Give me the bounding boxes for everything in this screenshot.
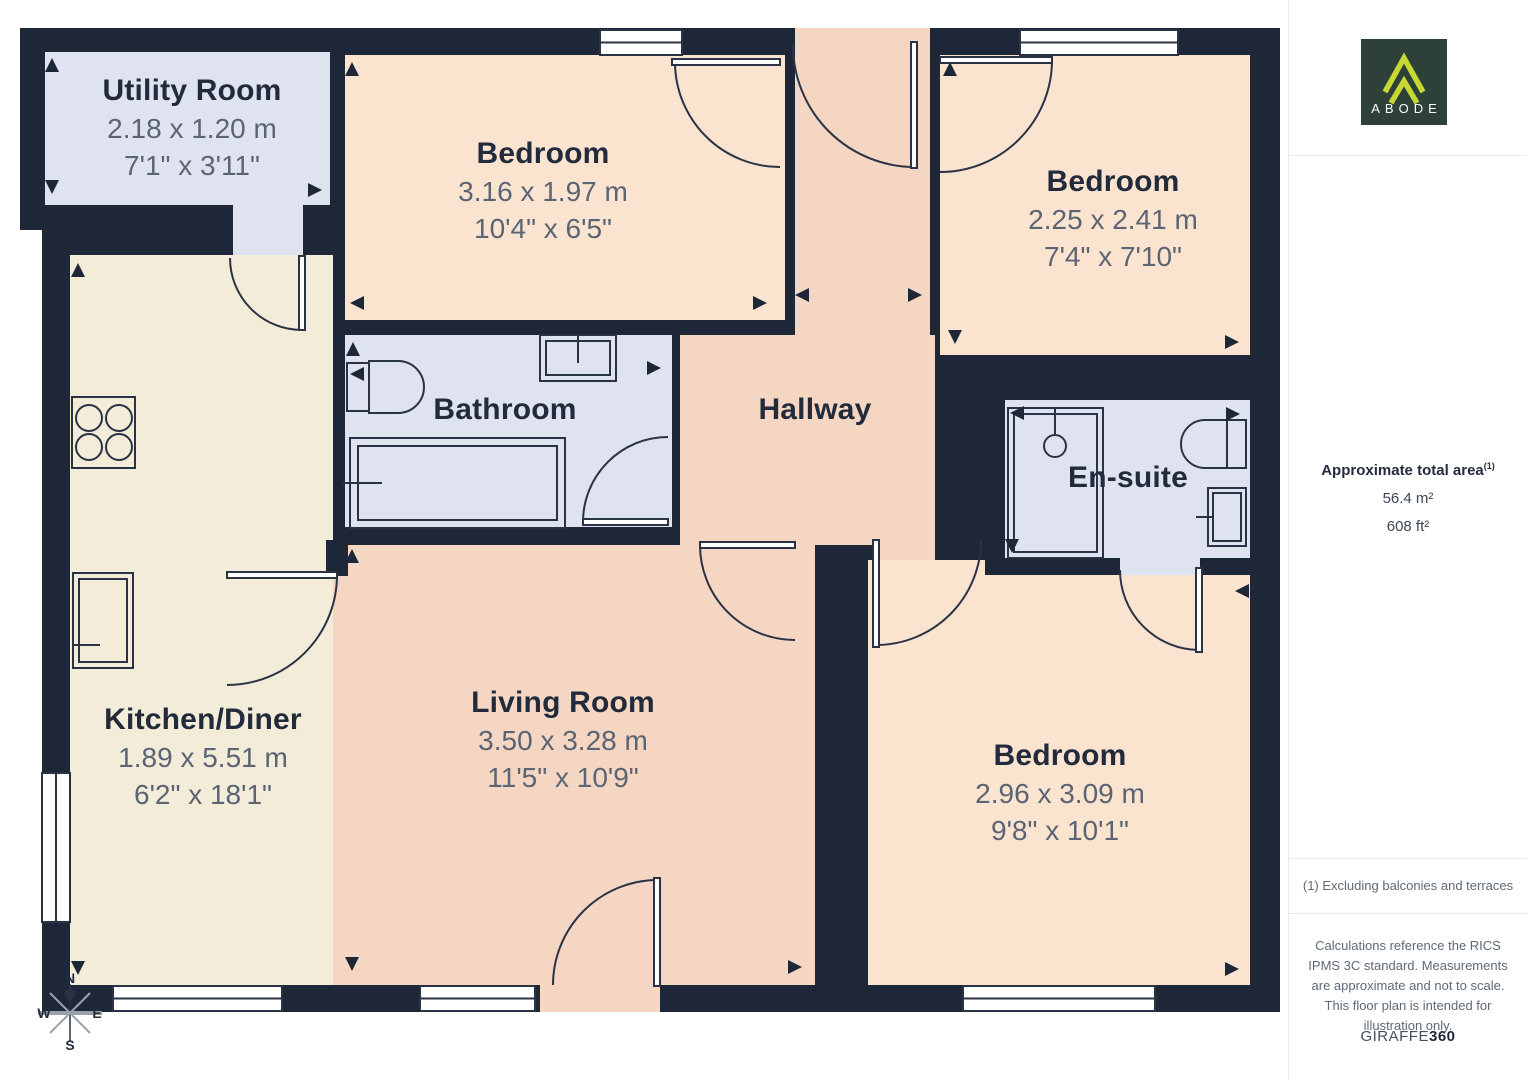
room-label-utility: Utility Room 2.18 x 1.20 m 7'1" x 3'11": [102, 74, 281, 182]
total-area-title: Approximate total area(1): [1289, 461, 1527, 479]
room-dim-imperial: 7'4" x 7'10": [1028, 241, 1198, 273]
room-dim-imperial: 10'4" x 6'5": [458, 213, 628, 245]
room-name: Utility Room: [102, 74, 281, 108]
provider-suffix: 360: [1429, 1028, 1456, 1045]
room-label-kitchen: Kitchen/Diner 1.89 x 5.51 m 6'2" x 18'1": [104, 703, 302, 811]
room-dim-metric: 1.89 x 5.51 m: [104, 742, 302, 774]
room-name: Bedroom: [975, 739, 1145, 773]
room-dim-metric: 2.18 x 1.20 m: [102, 113, 281, 145]
giraffe360-branding: GIRAFFE360: [1289, 1028, 1527, 1045]
room-label-bedroom-bottom: Bedroom 2.96 x 3.09 m 9'8" x 10'1": [975, 739, 1145, 847]
room-dim-imperial: 9'8" x 10'1": [975, 815, 1145, 847]
room-dim-metric: 2.96 x 3.09 m: [975, 778, 1145, 810]
abode-logo: ABODE: [1361, 39, 1447, 125]
total-area-block: Approximate total area(1) 56.4 m² 608 ft…: [1289, 461, 1527, 535]
room-name: Bedroom: [458, 137, 628, 171]
room-dim-metric: 2.25 x 2.41 m: [1028, 204, 1198, 236]
room-label-living: Living Room 3.50 x 3.28 m 11'5" x 10'9": [471, 686, 655, 794]
total-area-metric: 56.4 m²: [1289, 490, 1527, 507]
room-name: En-suite: [1068, 461, 1188, 495]
abode-logo-wordmark: ABODE: [1361, 101, 1447, 116]
room-name: Living Room: [471, 686, 655, 720]
provider-name: GIRAFFE: [1360, 1028, 1429, 1045]
room-label-bathroom: Bathroom: [433, 393, 576, 427]
compass-south-label: S: [65, 1037, 74, 1053]
room-name: Kitchen/Diner: [104, 703, 302, 737]
measurement-disclaimer: Calculations reference the RICS IPMS 3C …: [1303, 936, 1513, 1036]
sidebar-divider-bottom: [1289, 913, 1527, 914]
room-dim-imperial: 7'1" x 3'11": [102, 150, 281, 182]
room-label-ensuite: En-suite: [1068, 461, 1188, 495]
sidebar-vertical-divider: [1288, 0, 1289, 1080]
area-footnote: (1) Excluding balconies and terraces: [1289, 878, 1527, 893]
room-name: Bathroom: [433, 393, 576, 427]
room-name: Bedroom: [1028, 165, 1198, 199]
total-area-imperial: 608 ft²: [1289, 518, 1527, 535]
sidebar-divider-top: [1289, 155, 1527, 156]
room-dim-metric: 3.16 x 1.97 m: [458, 176, 628, 208]
room-label-bedroom-top: Bedroom 3.16 x 1.97 m 10'4" x 6'5": [458, 137, 628, 245]
room-label-bedroom-right: Bedroom 2.25 x 2.41 m 7'4" x 7'10": [1028, 165, 1198, 273]
room-label-hallway: Hallway: [758, 393, 871, 427]
room-dim-imperial: 6'2" x 18'1": [104, 779, 302, 811]
sidebar-divider-middle: [1289, 858, 1527, 859]
room-dim-metric: 3.50 x 3.28 m: [471, 725, 655, 757]
room-name: Hallway: [758, 393, 871, 427]
room-dim-imperial: 11'5" x 10'9": [471, 762, 655, 794]
footnote-marker: (1): [1484, 461, 1495, 471]
compass-north-label: N: [65, 970, 75, 986]
compass-east-label: E: [92, 1005, 101, 1021]
compass-west-label: W: [37, 1005, 50, 1021]
floor-plan-page: Utility Room 2.18 x 1.20 m 7'1" x 3'11" …: [0, 0, 1527, 1080]
